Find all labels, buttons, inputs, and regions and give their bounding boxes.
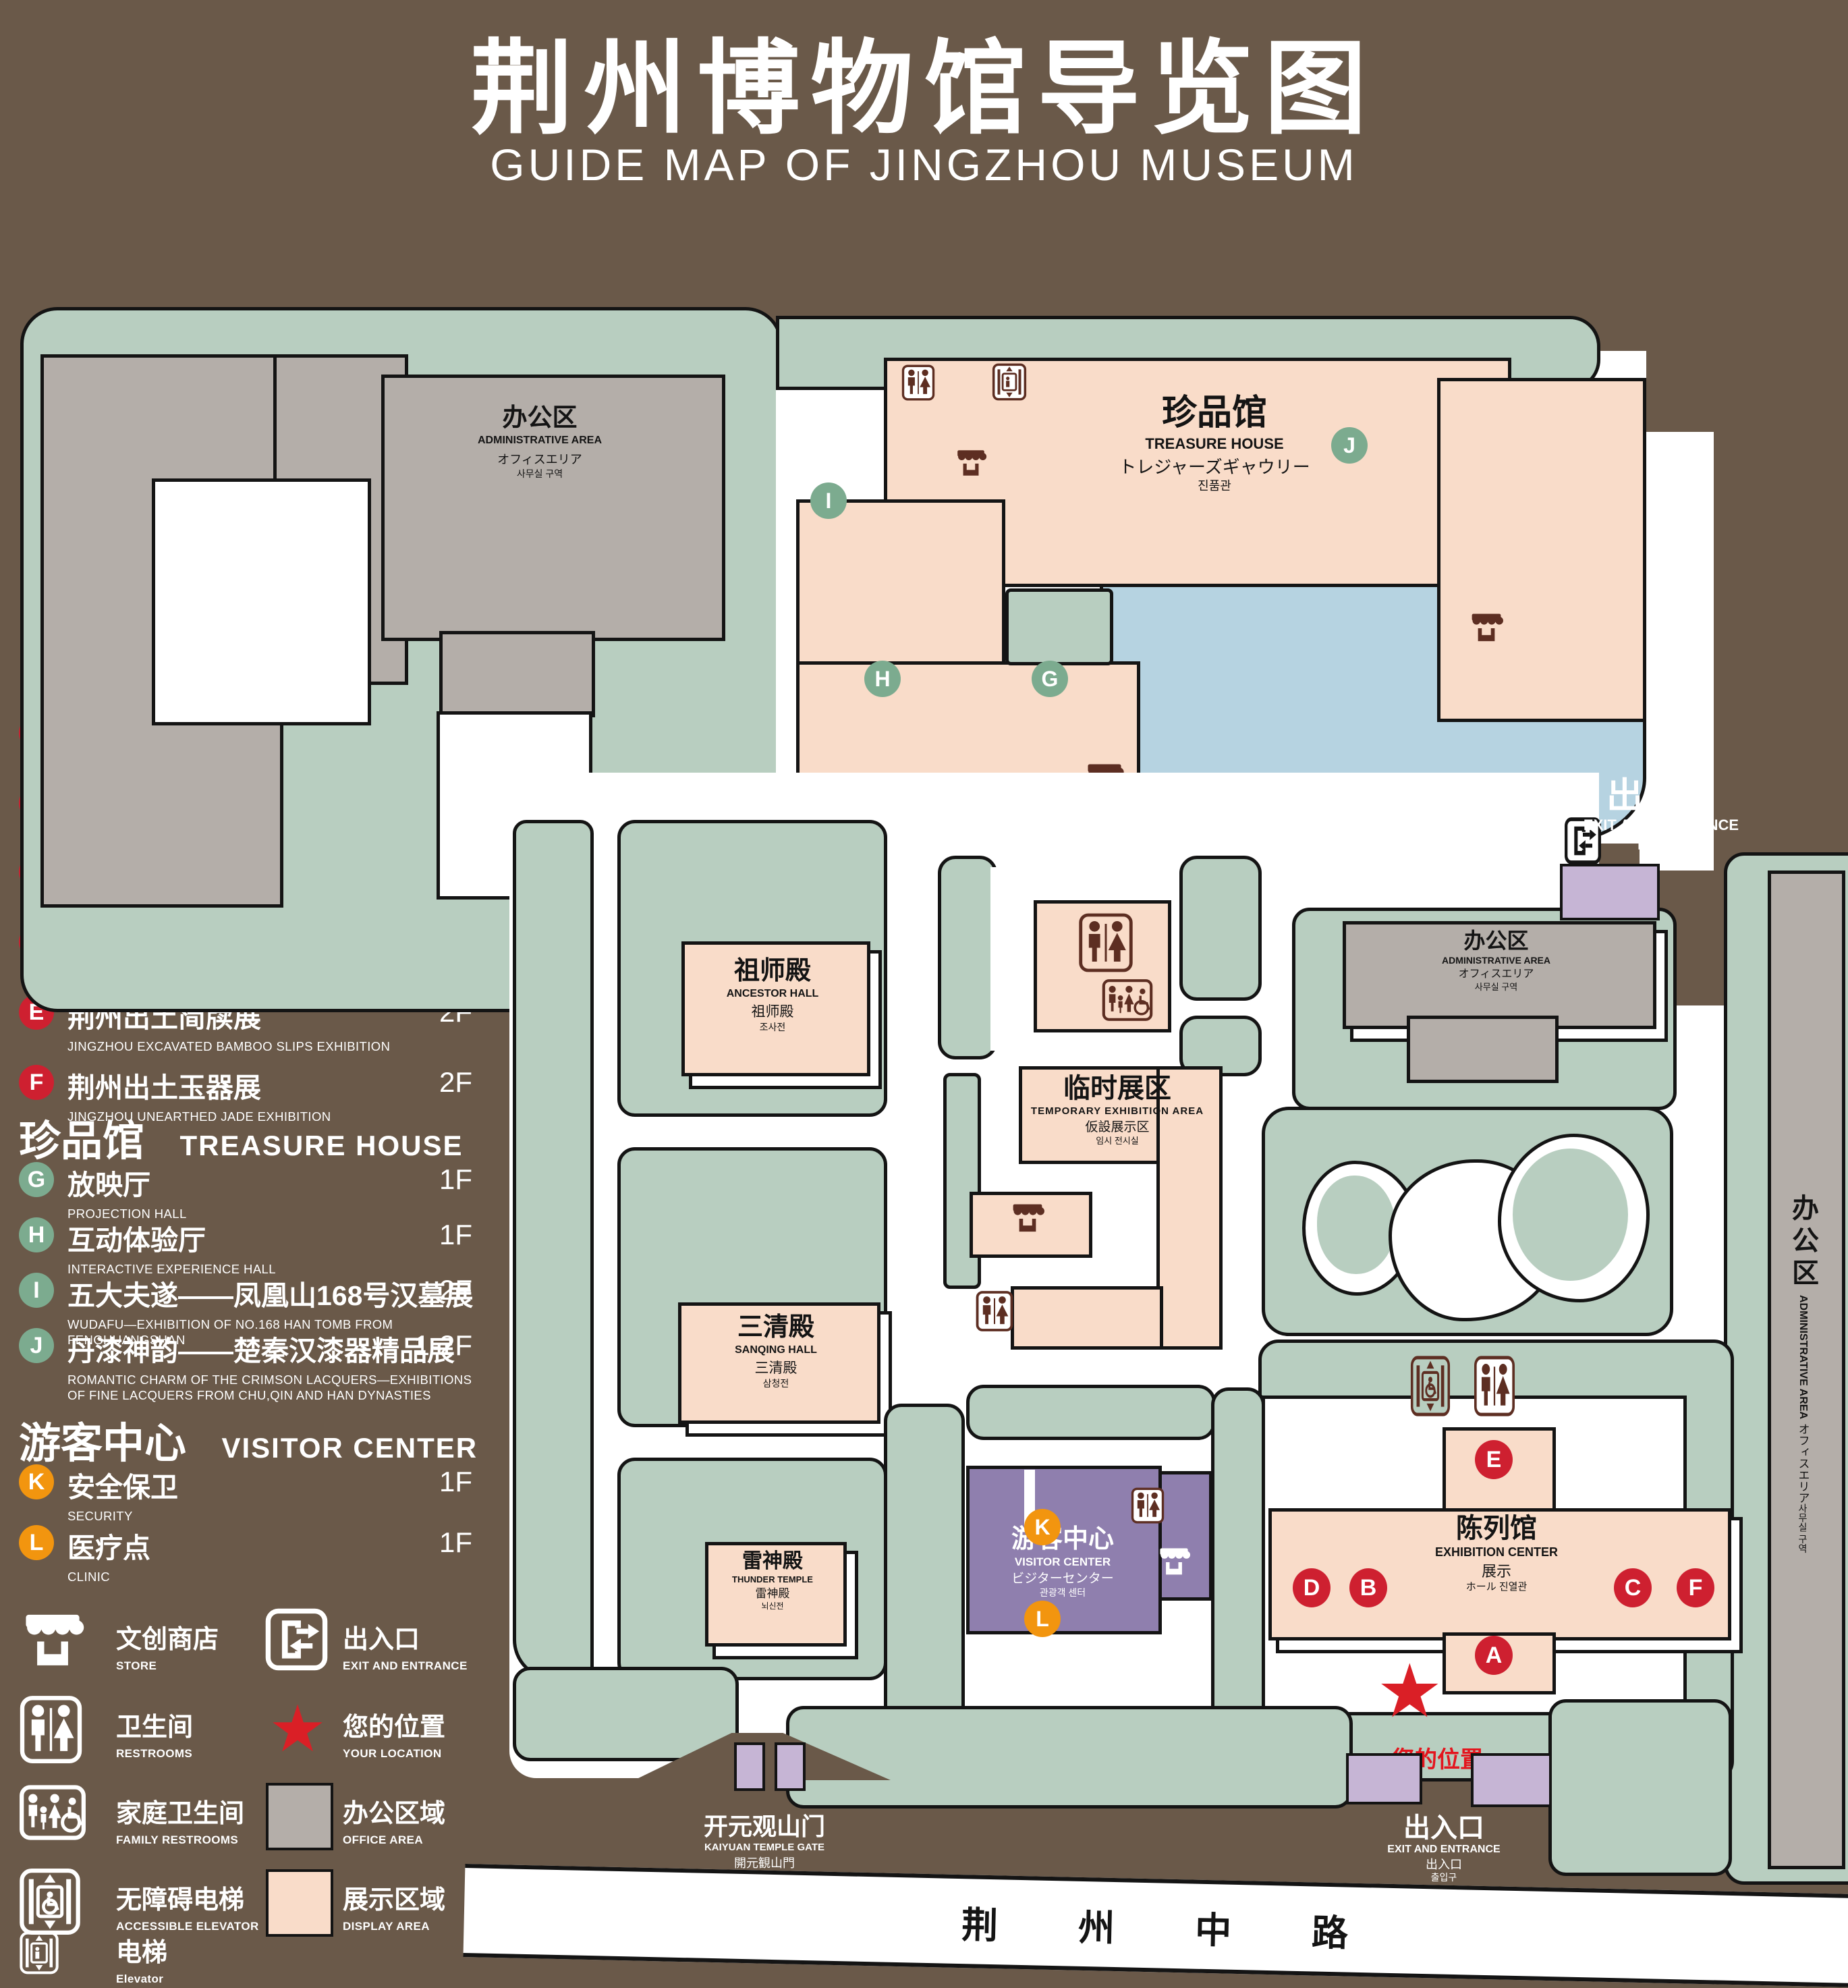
treasure-house-east-wing: [1437, 378, 1646, 722]
badge-K: K: [19, 1464, 54, 1499]
office-area-legend-label: 办公区域 OFFICE AREA: [343, 1792, 445, 1847]
park-band-south: [786, 1706, 1353, 1808]
admin-west-courtyard-1: [152, 478, 371, 725]
exit-icon: [264, 1607, 329, 1672]
store-icon: [19, 1609, 86, 1674]
admin-east-label: 办公区 ADMINISTRATIVE AREA オフィスエリア 사무실 구역: [1343, 930, 1650, 992]
admin-east-block-tab: [1407, 1016, 1559, 1083]
thunder-temple-label: 雷神殿 THUNDER TEMPLE 雷神殿 뇌신전: [705, 1551, 840, 1611]
item-floor: 2F: [439, 1274, 472, 1306]
map-badge-C: C: [1614, 1568, 1652, 1607]
visitor-center-label: 游客中心 VISITOR CENTER ビジターセンター 관광객 센터: [972, 1526, 1154, 1597]
map-badge-K: K: [1024, 1509, 1061, 1545]
section-title-en: TREASURE HOUSE: [179, 1130, 463, 1161]
badge-H: H: [19, 1217, 54, 1252]
item-floor: 1F: [439, 1219, 472, 1251]
gate-kiosk-right: [775, 1742, 806, 1791]
family-restroom-legend-label: 家庭卫生间 FAMILY RESTROOMS: [116, 1792, 244, 1847]
map-badge-A: A: [1475, 1636, 1513, 1675]
legend-item-J: J 丹漆神韵——楚秦汉漆器精品展 ROMANTIC CHARM OF THE C…: [19, 1328, 472, 1403]
guide-map-page: { "title": { "zh": "荆州博物馆导览图", "en": "GU…: [0, 0, 1848, 1976]
restroom-icon: [19, 1695, 83, 1764]
map-badge-J: J: [1331, 427, 1368, 464]
map-badge-G: G: [1032, 661, 1068, 697]
ancestor-hall-label: 祖师殿 ANCESTOR HALL 祖师殿 조사전: [681, 958, 864, 1032]
restroom-icon: [901, 364, 935, 401]
map-badge-B: B: [1349, 1568, 1387, 1607]
section-title-en: VISITOR CENTER: [221, 1432, 478, 1464]
item-zh: 五大夫遂——凤凰山168号汉墓展: [67, 1273, 472, 1313]
section-title-zh: 游客中心: [19, 1420, 186, 1467]
park-notch-treasure: [1005, 588, 1113, 665]
badge-F: F: [19, 1065, 54, 1100]
map-badge-F: F: [1677, 1568, 1714, 1607]
item-floor: 1F: [439, 1526, 472, 1559]
park-band-southeast: [1548, 1699, 1732, 1876]
store-icon: [1156, 1543, 1192, 1582]
store-legend-label: 文创商店 STORE: [116, 1618, 219, 1673]
elevator-legend-label: 电梯 Elevator: [116, 1931, 167, 1986]
map-badge-L: L: [1024, 1601, 1061, 1637]
legend-section-visitor-center: 游客中心 VISITOR CENTER: [19, 1409, 478, 1470]
gate-kiosk-left: [734, 1742, 765, 1791]
store-icon: [1009, 1198, 1046, 1239]
accessible-elevator-icon: [19, 1868, 81, 1935]
elevator-icon: [992, 363, 1027, 401]
display-area-legend-label: 展示区域 DISPLAY AREA: [343, 1879, 445, 1933]
family-restroom-icon: [1096, 978, 1159, 1022]
map-badge-D: D: [1293, 1568, 1331, 1607]
garden-island-west-green: [1317, 1176, 1395, 1274]
item-zh: 丹漆神韵——楚秦汉漆器精品展: [67, 1328, 472, 1369]
exit-legend-label: 出入口 EXIT AND ENTRANCE: [343, 1618, 468, 1673]
store-icon: [1468, 609, 1505, 648]
item-zh: 放映厅: [67, 1162, 472, 1203]
temporary-exhibition-label: 临时展区 TEMPORARY EXHIBITION AREA 仮設展示区 임시 …: [1012, 1074, 1223, 1145]
map-badge-E: E: [1475, 1440, 1513, 1479]
admin-east-vertical-label: 办公区 ADMINISTRATIVE AREA オフィスエリア 사무실 구역: [1769, 1053, 1837, 1694]
north-exit-kiosk: [1560, 864, 1660, 920]
restroom-icon: [1131, 1487, 1165, 1524]
restroom-icon: [1474, 1355, 1515, 1417]
map-badge-H: H: [864, 661, 901, 697]
your-location-legend-label: 您的位置 YOUR LOCATION: [343, 1706, 445, 1761]
your-location-star-icon: ★: [269, 1697, 327, 1762]
accessible-elevator-legend-label: 无障碍电梯 ACCESSIBLE ELEVATOR: [116, 1879, 259, 1933]
admin-west-label: 办公区 ADMINISTRATIVE AREA オフィスエリア 사무실 구역: [432, 405, 648, 478]
item-zh: 荆州出土玉器展: [67, 1065, 472, 1105]
garden-island-east-green: [1513, 1149, 1628, 1281]
item-en: JINGZHOU EXCAVATED BAMBOO SLIPS EXHIBITI…: [67, 1039, 472, 1054]
restroom-icon: [976, 1290, 1013, 1332]
road-name: 荆 州 中 路: [961, 1895, 1384, 1958]
page-subtitle: GUIDE MAP OF JINGZHOU MUSEUM: [0, 139, 1848, 190]
sanqing-hall-label: 三清殿 SANQING HALL 三清殿 삼청전: [678, 1315, 874, 1388]
family-restroom-icon: [19, 1782, 86, 1844]
legend-item-G: G 放映厅 PROJECTION HALL 1F: [19, 1162, 472, 1221]
legend-item-K: K 安全保卫 SECURITY 1F: [19, 1464, 472, 1524]
item-zh: 互动体验厅: [67, 1217, 472, 1258]
item-en: CLINIC: [67, 1569, 472, 1584]
store-icon: [954, 445, 988, 482]
treasure-house-label: 珍品馆 TREASURE HOUSE トレジャーズギャウリー 진품관: [1080, 395, 1349, 493]
temporary-exhibition-south: [1011, 1286, 1163, 1350]
map-badge-I: I: [810, 482, 847, 519]
south-exit-kiosk-right: [1471, 1753, 1552, 1807]
legend-item-L: L 医疗点 CLINIC 1F: [19, 1525, 472, 1584]
accessible-elevator-icon: [1410, 1355, 1451, 1417]
south-exit-label: 出入口 EXIT AND ENTRANCE 出入口 출입구: [1322, 1814, 1565, 1882]
park-wc-court-right: [1179, 856, 1262, 1001]
elevator-icon: [19, 1931, 59, 1975]
page-title: 荆州博物馆导览图: [0, 5, 1848, 154]
road-band: 荆 州 中 路: [463, 1864, 1848, 1988]
badge-G: G: [19, 1162, 54, 1197]
legend-section-treasure-house: 珍品馆 TREASURE HOUSE: [19, 1107, 464, 1167]
display-area-swatch: [266, 1869, 333, 1937]
item-floor: 1F: [439, 1163, 472, 1196]
item-floor: 2F: [439, 1066, 472, 1099]
item-zh: 医疗点: [67, 1525, 472, 1566]
badge-J: J: [19, 1328, 54, 1363]
restroom-icon: [1078, 911, 1133, 974]
office-area-swatch: [266, 1783, 333, 1850]
badge-I: I: [19, 1273, 54, 1308]
north-exit-label: 出入口 EXIT AND ENTRANCE 出入口 출입구: [1540, 777, 1783, 865]
admin-west-wing-foot: [439, 631, 595, 717]
park-visitor-north: [966, 1385, 1216, 1440]
park-wc-court-left: [938, 856, 997, 1059]
park-strip-west: [513, 820, 594, 1680]
item-floor: 1F: [439, 1466, 472, 1498]
south-exit-kiosk-left: [1346, 1753, 1422, 1804]
item-floor: 1-2F: [414, 1329, 472, 1362]
item-zh: 安全保卫: [67, 1464, 472, 1505]
legend-item-H: H 互动体验厅 INTERACTIVE EXPERIENCE HALL 1F: [19, 1217, 472, 1277]
your-location-star: ★: [1376, 1655, 1443, 1729]
restroom-legend-label: 卫生间 RESTROOMS: [116, 1706, 193, 1761]
badge-L: L: [19, 1525, 54, 1560]
item-en: ROMANTIC CHARM OF THE CRIMSON LACQUERS—E…: [67, 1372, 472, 1403]
section-title-zh: 珍品馆: [19, 1118, 144, 1165]
item-en: SECURITY: [67, 1508, 472, 1524]
